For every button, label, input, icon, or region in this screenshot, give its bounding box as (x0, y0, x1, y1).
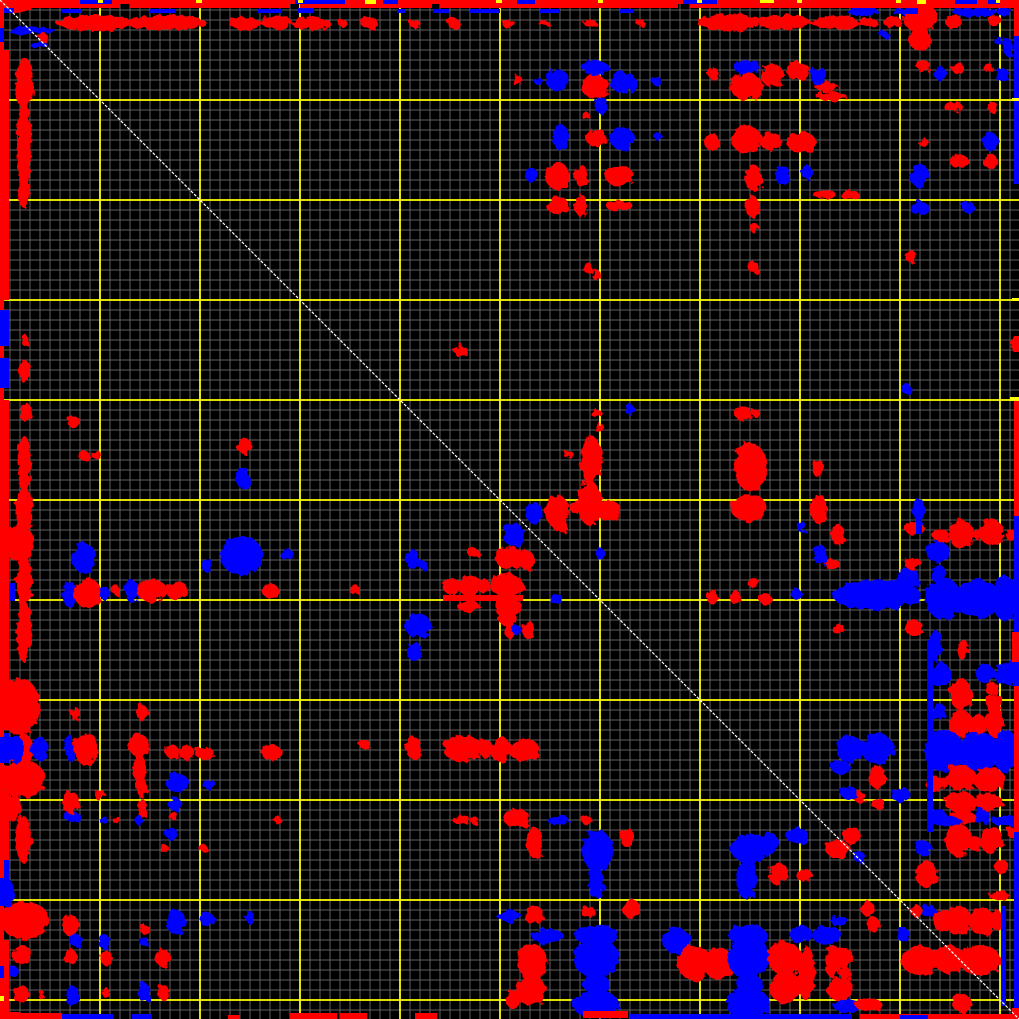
loss-blob (201, 559, 214, 572)
edge-band-segment (0, 878, 4, 906)
gain-blob (915, 861, 938, 887)
gain-blob (747, 579, 760, 587)
edge-band-segment (383, 0, 398, 4)
loss-blob (921, 905, 936, 917)
gain-blob (545, 163, 570, 189)
loss-blob (812, 926, 841, 944)
gain-blob (74, 732, 98, 765)
loss-blob (609, 127, 634, 149)
edge-band-segment (0, 310, 4, 346)
gain-blob (18, 436, 31, 493)
gain-blob (63, 915, 79, 937)
gain-blob (904, 558, 922, 569)
gain-blob (833, 624, 845, 635)
loss-blob (786, 828, 809, 844)
gain-blob (959, 945, 1001, 975)
gain-blob (745, 165, 762, 191)
loss-blob (853, 851, 865, 862)
gain-blob (158, 985, 169, 1000)
gain-blob (577, 481, 602, 525)
yellow-tick (1010, 397, 1019, 401)
gain-blob (20, 403, 32, 422)
gain-blob (570, 503, 578, 513)
loss-blob (727, 937, 770, 979)
gain-blob (636, 19, 645, 26)
gain-blob (575, 165, 588, 187)
gain-blob (919, 139, 929, 147)
edge-band-segment (0, 737, 4, 763)
gain-blob (591, 408, 601, 418)
loss-blob (99, 816, 108, 824)
yellow-tick (896, 0, 901, 3)
loss-blob (983, 132, 998, 151)
gain-blob (812, 459, 824, 477)
loss-blob (407, 641, 421, 661)
gain-blob (748, 261, 759, 273)
edge-band-segment (290, 1013, 337, 1019)
gain-blob (156, 949, 170, 967)
gain-blob (745, 196, 760, 217)
gain-blob (470, 817, 479, 824)
gain-blob (827, 977, 853, 1001)
edge-band-segment (4, 50, 9, 300)
edge-band-segment (4, 733, 9, 763)
loss-blob (997, 8, 1012, 16)
gain-blob (905, 250, 916, 262)
loss-blob (166, 910, 186, 934)
loss-blob (595, 548, 605, 559)
gain-blob (539, 20, 549, 27)
gain-blob (137, 579, 167, 602)
gain-blob (730, 73, 763, 100)
gain-blob (229, 17, 262, 30)
gain-blob (12, 945, 31, 964)
loss-blob (138, 983, 150, 1002)
gain-blob (983, 63, 993, 72)
gain-blob (74, 579, 102, 608)
loss-blob (236, 467, 250, 489)
gain-blob (508, 739, 540, 761)
gain-blob (160, 845, 169, 853)
gain-blob (735, 406, 752, 421)
gain-blob (824, 559, 840, 569)
gain-blob (518, 944, 547, 979)
loss-blob (532, 929, 564, 944)
gain-blob (101, 988, 110, 997)
loss-blob (934, 67, 946, 80)
loss-blob (625, 405, 635, 415)
gain-blob (816, 92, 847, 101)
gain-blob (94, 789, 105, 800)
gain-blob (237, 438, 252, 454)
gain-blob (19, 360, 30, 383)
edge-band-segment (1014, 398, 1019, 516)
gain-blob (606, 201, 633, 211)
gain-blob (70, 707, 80, 720)
gain-blob (786, 62, 810, 80)
gain-blob (983, 154, 998, 169)
gain-blob (797, 946, 815, 1000)
edge-band-segment (1012, 632, 1019, 662)
gain-blob (553, 521, 568, 532)
gain-blob (759, 15, 812, 29)
gain-blob (581, 75, 609, 98)
loss-blob (135, 816, 144, 825)
edge-band-segment (583, 1011, 628, 1018)
edge-band-segment (517, 0, 535, 4)
loss-blob (841, 787, 858, 800)
loss-blob (65, 734, 74, 761)
gain-blob (349, 585, 360, 594)
gain-blob (909, 27, 931, 51)
gain-blob (16, 816, 31, 863)
gain-blob (62, 791, 79, 814)
gain-blob (988, 102, 998, 113)
gain-blob (768, 863, 789, 885)
loss-blob (64, 813, 82, 822)
gain-blob (825, 841, 850, 857)
gain-blob (79, 451, 90, 461)
edge-band-segment (630, 1014, 730, 1019)
edge-band-segment (298, 8, 314, 13)
gain-blob (945, 824, 972, 856)
loss-blob (546, 69, 569, 91)
gain-blob (490, 737, 511, 762)
gain-blob (406, 737, 422, 759)
gain-blob (592, 270, 601, 280)
loss-blob (736, 858, 757, 899)
loss-blob (595, 97, 608, 114)
loss-blob (915, 841, 932, 856)
difference-matrix-figure (0, 0, 1019, 1019)
edge-band-segment (955, 0, 977, 4)
loss-blob (1003, 38, 1013, 56)
edge-band-segment (540, 9, 560, 13)
loss-blob (993, 36, 1002, 44)
yellow-tick (98, 0, 103, 3)
loss-blob (246, 911, 254, 924)
gain-blob (169, 811, 177, 821)
gain-blob (580, 436, 602, 483)
loss-blob (165, 828, 178, 839)
gain-blob (129, 734, 149, 757)
gain-blob (447, 18, 460, 28)
loss-blob (847, 7, 878, 16)
loss-blob (582, 830, 613, 872)
loss-blob (831, 760, 850, 774)
gain-blob (112, 817, 121, 823)
loss-blob (836, 736, 864, 762)
gain-blob (974, 794, 1003, 810)
gain-blob (262, 584, 279, 598)
gain-blob (100, 950, 112, 965)
loss-blob (525, 167, 537, 182)
gain-blob (704, 133, 719, 150)
loss-blob (573, 938, 619, 978)
gain-blob (91, 450, 101, 459)
gain-blob (768, 942, 802, 975)
gain-blob (989, 891, 1009, 900)
gain-blob (140, 924, 149, 934)
gain-blob (136, 705, 148, 720)
edge-band-segment (440, 4, 678, 8)
loss-blob (929, 816, 962, 826)
gain-blob (490, 574, 524, 597)
edge-band-segment (1014, 832, 1019, 1018)
gain-blob (522, 621, 535, 639)
gain-blob (946, 765, 976, 790)
loss-blob (583, 60, 609, 76)
gain-blob (452, 815, 470, 824)
loss-blob (797, 522, 807, 532)
gain-blob (21, 335, 29, 346)
gain-blob (861, 901, 874, 916)
gain-blob (752, 409, 760, 417)
loss-blob (418, 560, 427, 569)
gain-blob (786, 132, 816, 152)
gain-blob (950, 679, 972, 710)
loss-blob (962, 202, 975, 213)
loss-blob (910, 165, 930, 187)
gain-blob (769, 971, 801, 1003)
gain-blob (620, 828, 635, 847)
gain-blob (502, 19, 515, 28)
gain-blob (524, 906, 544, 924)
gain-blob (195, 747, 214, 759)
gain-blob (199, 844, 207, 852)
gain-blob (623, 899, 640, 919)
edge-band-segment (4, 400, 9, 730)
loss-blob (503, 523, 524, 546)
edge-band-segment (340, 1013, 367, 1019)
gain-blob (944, 101, 962, 112)
gain-blob (127, 15, 206, 30)
gain-blob (467, 548, 479, 557)
gain-blob (595, 423, 604, 433)
gain-blob (546, 197, 569, 214)
loss-blob (610, 72, 637, 93)
gain-blob (734, 443, 767, 491)
loss-blob (952, 7, 997, 17)
gain-blob (952, 995, 972, 1012)
gain-blob (811, 16, 858, 29)
gain-blob (956, 639, 969, 659)
gain-blob (813, 190, 836, 199)
loss-blob (72, 543, 96, 573)
edge-band-segment (300, 4, 432, 8)
gain-blob (519, 551, 535, 570)
edge-band-segment (0, 4, 120, 8)
yellow-tick (1012, 298, 1019, 301)
gain-blob (761, 64, 784, 87)
yellow-tick (797, 0, 802, 3)
edge-band-segment (0, 28, 4, 42)
gain-blob (409, 19, 420, 28)
loss-blob (31, 737, 48, 760)
edge-band-segment (150, 9, 176, 13)
gain-blob (760, 132, 782, 151)
gain-blob (179, 745, 194, 760)
gain-blob (949, 155, 969, 167)
edge-band-segment (4, 940, 9, 1019)
loss-blob (66, 986, 80, 1007)
gain-blob (443, 735, 482, 762)
gain-blob (985, 682, 999, 695)
yellow-tick (697, 0, 702, 3)
edge-band-segment (80, 0, 112, 4)
gain-blob (933, 529, 949, 542)
yellow-tick (298, 0, 303, 3)
yellow-tick (196, 0, 202, 3)
loss-blob (406, 549, 419, 569)
gain-blob (68, 416, 80, 428)
edge-band-segment (860, 1014, 1019, 1019)
edge-band-segment (470, 9, 500, 13)
gain-blob (750, 223, 759, 233)
edge-band-segment (0, 0, 1019, 4)
gain-blob (273, 816, 281, 823)
edge-band-segment (1014, 36, 1019, 184)
gain-blob (731, 494, 767, 522)
gain-blob (359, 739, 370, 749)
loss-blob (100, 587, 110, 600)
loss-blob (168, 798, 182, 810)
loss-blob (497, 911, 522, 922)
gain-blob (968, 836, 982, 851)
loss-blob (281, 549, 294, 561)
loss-blob (775, 166, 791, 185)
edge-band-segment (258, 9, 282, 13)
gain-blob (292, 17, 331, 30)
yellow-tick (496, 0, 502, 3)
gain-blob (457, 600, 479, 612)
gain-blob (730, 590, 740, 604)
edge-band-segment (690, 4, 1019, 8)
yellow-tick (996, 0, 1000, 3)
edge-band-segment (620, 9, 634, 13)
edge-band-segment (132, 1014, 152, 1019)
loss-blob (98, 935, 111, 949)
yellow-tick (917, 0, 926, 4)
loss-blob (654, 133, 662, 141)
gain-blob (944, 792, 976, 812)
gain-blob (564, 450, 573, 459)
edge-band-segment (1013, 662, 1019, 686)
gain-blob (707, 588, 717, 605)
gain-blob (361, 17, 378, 29)
gain-blob (859, 18, 878, 27)
gain-blob (137, 777, 147, 798)
gain-blob (583, 263, 593, 273)
gain-blob (949, 520, 974, 549)
edge-band-segment (20, 1013, 62, 1019)
gain-blob (843, 826, 860, 844)
loss-blob (220, 536, 263, 575)
loss-blob (880, 31, 889, 38)
loss-blob (891, 8, 906, 14)
loss-blob (512, 626, 522, 635)
loss-blob (976, 665, 995, 683)
gain-blob (338, 19, 347, 27)
gain-blob (988, 15, 1001, 26)
gain-blob (910, 904, 921, 916)
edge-band-segment (1001, 906, 1006, 1006)
loss-blob (202, 779, 215, 789)
yellow-tick (365, 0, 376, 4)
gain-blob (111, 585, 120, 594)
loss-blob (925, 541, 950, 562)
gain-blob (39, 33, 48, 42)
edge-band-segment (397, 9, 405, 13)
gain-blob (527, 827, 542, 858)
edge-band-segment (1014, 336, 1019, 352)
gain-blob (133, 754, 146, 782)
edge-band-segment (415, 1013, 437, 1019)
edge-band-segment (0, 358, 4, 388)
gain-blob (16, 556, 32, 604)
gain-blob (946, 906, 972, 936)
loss-blob (70, 935, 83, 947)
gain-blob (586, 129, 607, 147)
edge-band-segment (905, 8, 918, 14)
gain-blob (56, 15, 132, 31)
edge-band-segment (730, 1014, 852, 1019)
edge-band-segment (433, 9, 449, 13)
gain-blob (454, 345, 467, 357)
gain-blob (582, 112, 590, 120)
loss-blob (891, 787, 910, 802)
gain-blob (855, 998, 882, 1011)
gain-blob (917, 60, 930, 73)
loss-blob (547, 815, 569, 825)
loss-blob (831, 915, 847, 927)
edge-band-segment (927, 640, 933, 832)
loss-blob (760, 833, 779, 854)
gain-blob (596, 500, 621, 521)
edge-band-segment (9, 583, 15, 601)
yellow-tick (760, 0, 774, 3)
edge-band-segment (0, 0, 4, 1019)
gain-blob (980, 826, 1003, 854)
gain-blob (16, 489, 33, 530)
edge-band-segment (0, 1012, 20, 1019)
gain-blob (979, 520, 1004, 545)
gain-blob (995, 859, 1008, 874)
gain-blob (605, 165, 633, 186)
gain-blob (261, 745, 282, 760)
gain-blob (38, 991, 45, 999)
gain-blob (503, 809, 530, 827)
loss-blob (910, 201, 929, 215)
gain-blob (973, 767, 1005, 792)
gain-blob (478, 579, 490, 593)
loss-blob (861, 734, 894, 764)
gain-blob (580, 906, 595, 917)
edge-band-segment (0, 966, 4, 978)
loss-blob (995, 68, 1009, 82)
gain-blob (871, 799, 886, 809)
loss-blob (549, 593, 562, 604)
loss-blob (896, 928, 910, 941)
gain-blob (584, 19, 596, 27)
gain-blob (867, 917, 880, 932)
gain-blob (708, 68, 719, 79)
loss-blob (30, 41, 47, 48)
edge-band-segment (228, 1015, 240, 1019)
edge-band-segment (4, 358, 9, 388)
gain-blob (697, 14, 762, 31)
difference-matrix-canvas (0, 0, 1019, 1019)
